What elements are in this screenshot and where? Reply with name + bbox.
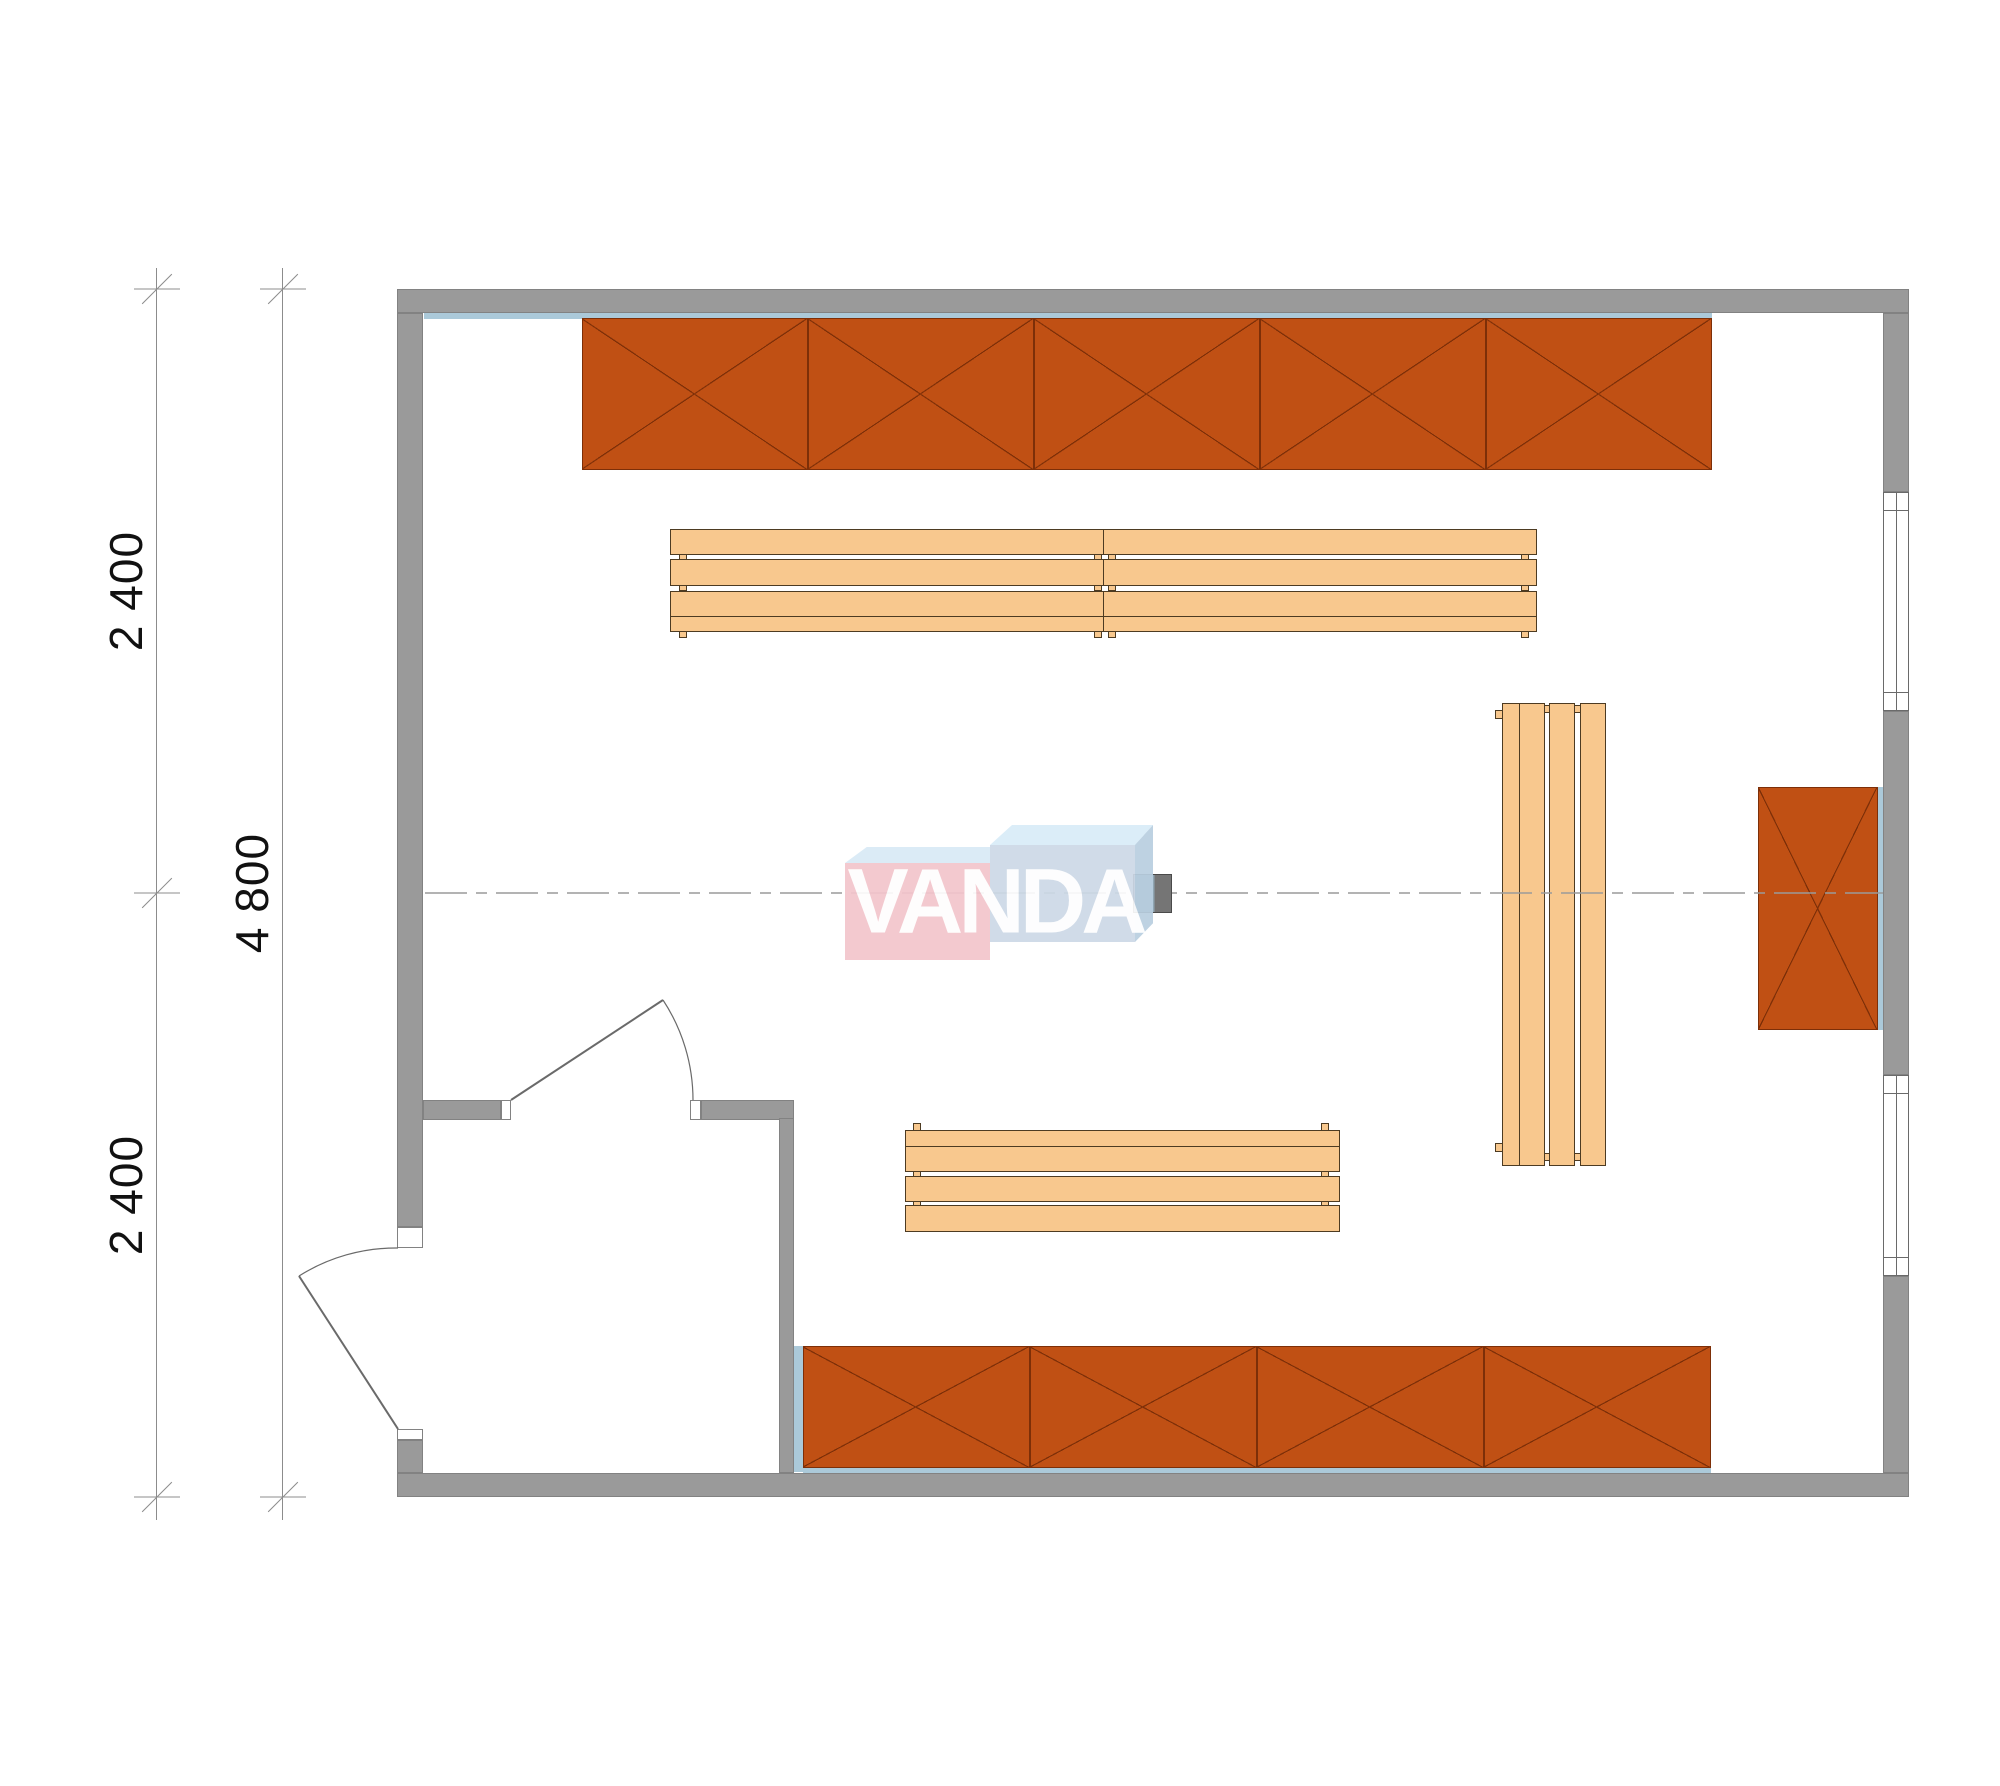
heater-unit (1133, 874, 1172, 913)
floor-plan-canvas: 2 400 4 800 2 400 (0, 0, 2000, 1786)
doors-and-centerline-overlay (0, 0, 2000, 1786)
door-swing-arc-interior (663, 1000, 693, 1100)
door-leaf-interior (511, 1000, 663, 1100)
door-swing-arc-exterior (299, 1248, 398, 1276)
door-leaf-exterior (299, 1276, 398, 1429)
